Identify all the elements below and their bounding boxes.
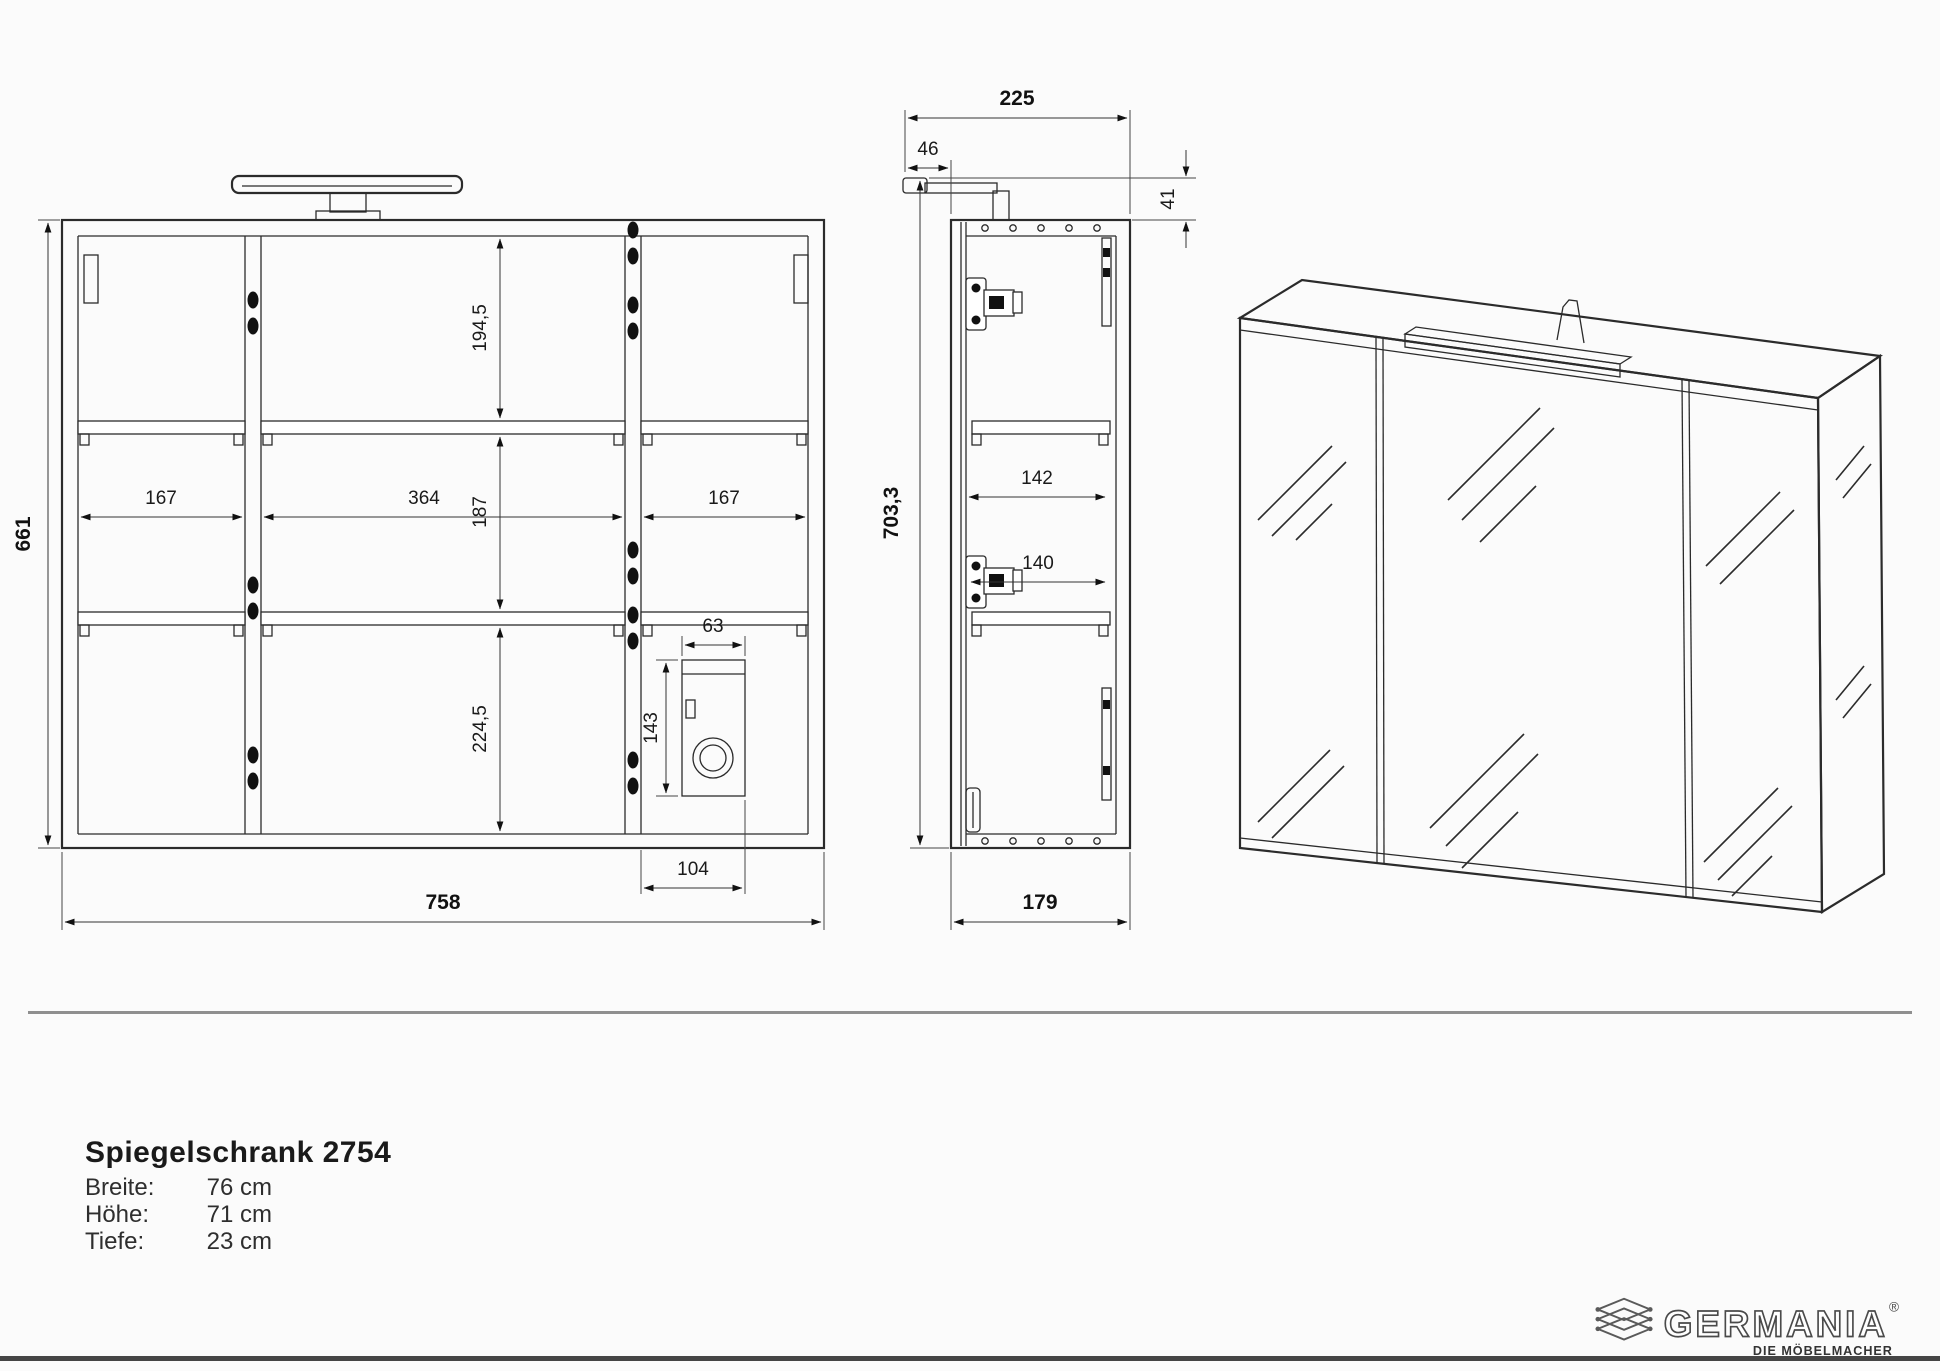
spec-value: 76 cm xyxy=(207,1174,272,1201)
hinge-blob xyxy=(248,773,259,790)
product-title: Spiegelschrank 2754 xyxy=(85,1136,391,1170)
side-cabinet-body xyxy=(951,220,1130,848)
spec-label: Breite: xyxy=(85,1174,200,1201)
socket-outlet xyxy=(693,738,733,778)
spec-row-tiefe: Tiefe: 23 cm xyxy=(85,1228,391,1255)
persp-right-face xyxy=(1818,356,1884,912)
mirror-hatch-line xyxy=(1446,754,1538,846)
screw-dot xyxy=(1094,838,1100,844)
footer-rule xyxy=(0,1356,1940,1361)
dim-left-compartment: 167 xyxy=(145,488,177,509)
screw-dot xyxy=(1010,838,1016,844)
spec-row-hoehe: Höhe: 71 cm xyxy=(85,1201,391,1228)
germania-stack-icon xyxy=(1595,1299,1652,1340)
screw-dot xyxy=(1094,225,1100,231)
hinge-blob xyxy=(248,747,259,764)
dim-right-compartment: 167 xyxy=(708,488,740,509)
mirror-hatching xyxy=(1258,408,1871,896)
title-block: Spiegelschrank 2754 Breite: 76 cm Höhe: … xyxy=(85,1136,391,1255)
screw-dot xyxy=(982,838,988,844)
shelf-clip xyxy=(972,625,981,636)
shelf-clip xyxy=(797,434,806,445)
mirror-hatch-line xyxy=(1843,464,1871,498)
side-view: 225 46 41 703,3 142 140 179 xyxy=(880,87,1196,930)
shelf-clip xyxy=(643,625,652,636)
mirror-hatch-line xyxy=(1718,806,1792,880)
dim-light-height: 41 xyxy=(1158,188,1179,209)
persp-top-face xyxy=(1240,280,1880,398)
dim-socket-height: 143 xyxy=(641,712,662,744)
mirror-hatch-line xyxy=(1296,504,1332,540)
screw-dots xyxy=(982,225,1100,844)
side-dimensions: 225 46 41 703,3 142 140 179 xyxy=(880,87,1196,930)
front-shelves xyxy=(78,421,808,636)
mirror-hatch-line xyxy=(1258,750,1330,822)
mirror-hatch-line xyxy=(1704,788,1778,862)
power-socket-box xyxy=(682,660,745,796)
front-view: 661 758 167 364 167 194,5 187 224,5 63 xyxy=(12,176,824,930)
shelf-clip xyxy=(797,625,806,636)
persp-door-gap-right xyxy=(1682,380,1686,897)
hinge-blob xyxy=(628,542,639,559)
hinge-blob xyxy=(628,778,639,795)
dim-clear-depth-upper: 142 xyxy=(1021,468,1053,489)
hinge-blob xyxy=(628,752,639,769)
mirror-hatch-line xyxy=(1836,666,1864,700)
dim-socket-width: 63 xyxy=(702,616,723,637)
mirror-hatch-line xyxy=(1732,856,1772,896)
front-cabinet-body xyxy=(62,220,824,848)
mirror-hatch-line xyxy=(1462,812,1518,868)
dim-height-with-light: 703,3 xyxy=(880,487,903,540)
screw-dot xyxy=(982,225,988,231)
screw-dot xyxy=(1066,838,1072,844)
logo-registered-mark: ® xyxy=(1889,1299,1899,1314)
spec-row-breite: Breite: 76 cm xyxy=(85,1174,391,1201)
door-handle-left xyxy=(84,255,98,303)
mirror-hatch-line xyxy=(1706,492,1780,566)
hinge-blob xyxy=(248,577,259,594)
mirror-hatch-line xyxy=(1258,446,1332,520)
shelf-clip xyxy=(1099,625,1108,636)
mirror-hatch-line xyxy=(1448,408,1540,500)
hinge-blob xyxy=(628,323,639,340)
hinge-blob xyxy=(628,297,639,314)
hinge-blob xyxy=(628,568,639,585)
dim-upper-section: 194,5 xyxy=(470,304,491,352)
dim-depth-with-light: 225 xyxy=(999,87,1034,110)
persp-front-face xyxy=(1240,318,1822,912)
screw-dot xyxy=(1038,225,1044,231)
shelf-clip xyxy=(234,625,243,636)
perspective-view xyxy=(1240,280,1884,912)
mirror-hatch-line xyxy=(1836,446,1864,480)
hinge-blob xyxy=(248,318,259,335)
shelf-clip xyxy=(1099,434,1108,445)
persp-light-fixture xyxy=(1405,300,1631,377)
dim-lower-section: 224,5 xyxy=(470,705,491,753)
mirror-hatch-line xyxy=(1843,684,1871,718)
shelf-clip xyxy=(972,434,981,445)
shelf-clip xyxy=(80,625,89,636)
mirror-hatch-line xyxy=(1462,428,1554,520)
spec-sheet-page: 661 758 167 364 167 194,5 187 224,5 63 xyxy=(0,0,1940,1371)
screw-dot xyxy=(1038,838,1044,844)
mirror-hatch-line xyxy=(1272,766,1344,838)
shelf-clip xyxy=(234,434,243,445)
shelf-clip xyxy=(263,625,272,636)
mirror-hatch-line xyxy=(1720,510,1794,584)
hinge-blob xyxy=(628,633,639,650)
front-hinges xyxy=(248,222,639,795)
dim-light-overhang: 46 xyxy=(917,139,938,160)
dim-middle-section: 187 xyxy=(470,496,491,528)
hinge-blob xyxy=(628,248,639,265)
screw-dot xyxy=(1066,225,1072,231)
dim-height-total: 661 xyxy=(12,516,35,551)
spec-label: Höhe: xyxy=(85,1201,200,1228)
screw-dot xyxy=(1010,225,1016,231)
door-handle-right xyxy=(794,255,808,303)
dim-clear-depth-lower: 140 xyxy=(1022,553,1054,574)
hinge-blob xyxy=(628,607,639,624)
shelf-clip xyxy=(80,434,89,445)
dim-depth-total: 179 xyxy=(1022,891,1057,914)
logo-wordmark: GERMANIA xyxy=(1664,1304,1888,1345)
persp-door-gap-left xyxy=(1376,338,1377,862)
spec-value: 23 cm xyxy=(207,1228,272,1255)
hinge-blob xyxy=(248,603,259,620)
side-light-fixture xyxy=(903,178,1009,220)
front-dimensions: 661 758 167 364 167 194,5 187 224,5 63 xyxy=(12,220,824,930)
dim-width-total: 758 xyxy=(425,891,460,914)
hinge-blob xyxy=(628,222,639,239)
spec-label: Tiefe: xyxy=(85,1228,200,1255)
front-light-fixture xyxy=(232,176,462,220)
shelf-clip xyxy=(614,434,623,445)
dim-center-compartment: 364 xyxy=(408,488,440,509)
content-divider-line xyxy=(28,1011,1912,1014)
mirror-hatch-line xyxy=(1272,462,1346,536)
hinge-blob xyxy=(248,292,259,309)
spec-value: 71 cm xyxy=(207,1201,272,1228)
shelf-clip xyxy=(643,434,652,445)
shelf-clip xyxy=(614,625,623,636)
shelf-clip xyxy=(263,434,272,445)
dim-socket-offset: 104 xyxy=(677,859,709,880)
